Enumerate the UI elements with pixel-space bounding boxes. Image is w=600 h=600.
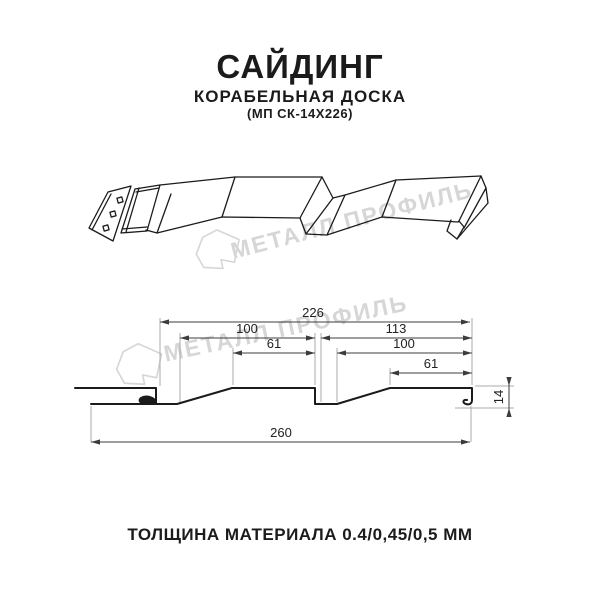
dim-wave1-top-label: 100 bbox=[236, 321, 258, 336]
profile-outline bbox=[75, 388, 472, 404]
flange-hole bbox=[103, 225, 109, 231]
dim-wave2-inner-label: 100 bbox=[393, 336, 415, 351]
dim-profile-height-label: 14 bbox=[491, 390, 506, 404]
flange-hole bbox=[110, 211, 116, 217]
dim-wave2-slope-label: 61 bbox=[424, 356, 438, 371]
brand-watermark-text: МЕТАЛЛ ПРОФИЛЬ bbox=[161, 289, 410, 366]
dim-wave2-top-label: 113 bbox=[386, 321, 407, 336]
watermark-isometric: МЕТАЛЛ ПРОФИЛЬ bbox=[194, 176, 475, 271]
technical-drawing-canvas: МЕТАЛЛ ПРОФИЛЬ МЕТАЛЛ ПРОФИЛЬ bbox=[0, 0, 600, 600]
dim-overall-width-label: 260 bbox=[270, 425, 292, 440]
material-thickness-note: ТОЛЩИНА МАТЕРИАЛА 0.4/0,45/0,5 ММ bbox=[0, 526, 600, 543]
brand-logo-icon bbox=[114, 341, 164, 387]
dim-profile-width-label: 226 bbox=[302, 305, 324, 320]
dim-wave1-slope-label: 61 bbox=[267, 336, 281, 351]
lock-curl bbox=[140, 397, 156, 404]
flange-hole bbox=[117, 197, 123, 203]
catalog-page: САЙДИНГ КОРАБЕЛЬНАЯ ДОСКА (МП СК-14Х226)… bbox=[0, 0, 600, 600]
lock-fold bbox=[121, 185, 160, 233]
brand-watermark-text: МЕТАЛЛ ПРОФИЛЬ bbox=[228, 176, 476, 264]
